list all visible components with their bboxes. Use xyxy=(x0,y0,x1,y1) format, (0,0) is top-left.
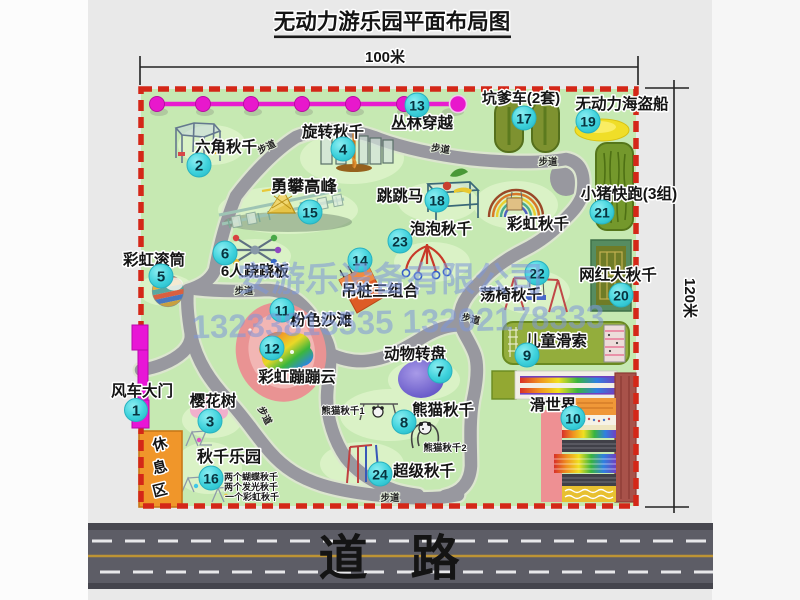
svg-text:100米: 100米 xyxy=(365,48,406,66)
svg-text:24: 24 xyxy=(372,467,388,483)
svg-text:熊猫秋千2: 熊猫秋千2 xyxy=(423,442,466,454)
svg-text:跳跳马: 跳跳马 xyxy=(377,186,424,205)
svg-text:樱花树: 樱花树 xyxy=(190,391,237,410)
svg-text:21: 21 xyxy=(594,205,610,221)
svg-text:8: 8 xyxy=(400,415,408,432)
svg-text:安游乐设备有限公司: 安游乐设备有限公司 xyxy=(237,261,543,299)
svg-text:熊猫秋千: 熊猫秋千 xyxy=(412,400,475,419)
svg-text:5: 5 xyxy=(157,269,165,286)
svg-text:2: 2 xyxy=(195,158,203,175)
svg-text:步道: 步道 xyxy=(538,156,558,168)
svg-text:坑爹车(2套): 坑爹车(2套) xyxy=(482,89,560,107)
svg-text:彩虹秋千: 彩虹秋千 xyxy=(506,214,570,233)
svg-text:步道: 步道 xyxy=(380,492,400,504)
svg-text:9: 9 xyxy=(523,348,531,365)
svg-text:13: 13 xyxy=(409,98,425,114)
svg-text:六角秋千: 六角秋千 xyxy=(195,137,258,156)
svg-text:一个彩虹秋千: 一个彩虹秋千 xyxy=(225,491,279,502)
svg-text:3: 3 xyxy=(206,414,214,431)
svg-text:勇攀高峰: 勇攀高峰 xyxy=(271,176,338,196)
svg-text:路: 路 xyxy=(410,532,460,586)
svg-text:无动力游乐园平面布局图: 无动力游乐园平面布局图 xyxy=(274,9,511,34)
svg-text:超级秋千: 超级秋千 xyxy=(392,461,456,480)
svg-text:16: 16 xyxy=(203,471,219,487)
svg-text:15: 15 xyxy=(302,205,318,221)
svg-text:风车大门: 风车大门 xyxy=(111,381,173,400)
svg-text:道: 道 xyxy=(318,532,367,586)
svg-text:网红大秋千: 网红大秋千 xyxy=(579,265,657,284)
svg-text:两个蝴蝶秋千: 两个蝴蝶秋千 xyxy=(224,471,278,482)
svg-text:泡泡秋千: 泡泡秋千 xyxy=(410,219,473,238)
svg-text:彩虹蹦蹦云: 彩虹蹦蹦云 xyxy=(257,367,336,386)
svg-text:1: 1 xyxy=(132,403,140,420)
svg-text:熊猫秋千1: 熊猫秋千1 xyxy=(321,405,365,417)
svg-text:4: 4 xyxy=(339,142,348,159)
svg-text:23: 23 xyxy=(392,234,408,250)
svg-text:旋转秋千: 旋转秋千 xyxy=(301,122,365,141)
svg-text:小猪快跑(3组): 小猪快跑(3组) xyxy=(581,184,677,203)
svg-text:10: 10 xyxy=(565,411,581,427)
svg-text:17: 17 xyxy=(516,111,532,127)
svg-text:19: 19 xyxy=(580,114,596,130)
svg-text:120米: 120米 xyxy=(681,278,699,319)
svg-text:20: 20 xyxy=(613,288,629,304)
svg-text:18: 18 xyxy=(429,193,445,209)
svg-text:秋千乐园: 秋千乐园 xyxy=(197,447,261,466)
svg-text:7: 7 xyxy=(436,364,444,381)
svg-text:6: 6 xyxy=(221,246,229,263)
svg-text:两个发光秋千: 两个发光秋千 xyxy=(224,481,278,492)
